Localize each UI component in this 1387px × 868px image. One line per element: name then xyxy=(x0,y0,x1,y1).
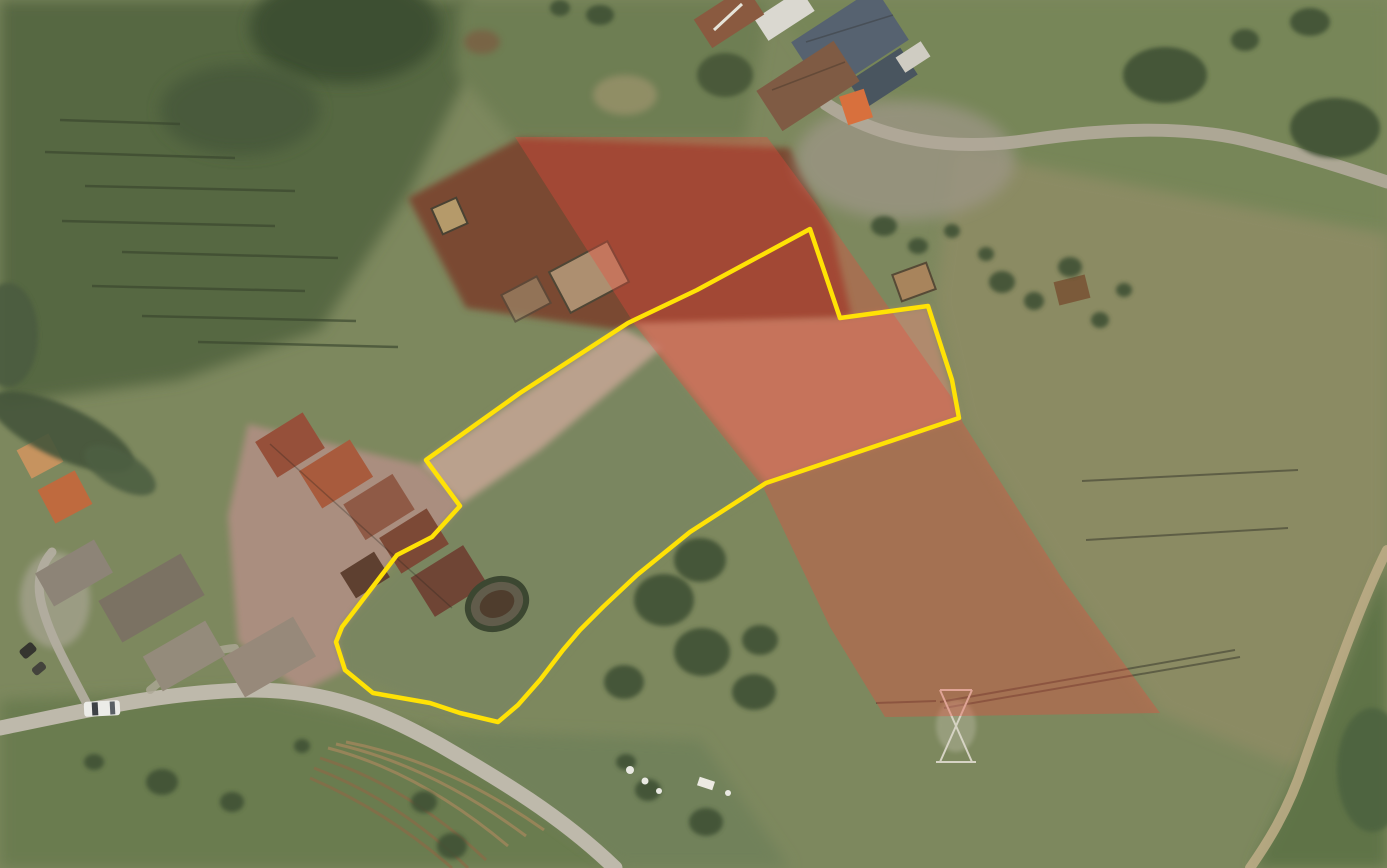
tree-canopy xyxy=(220,792,244,812)
white-car-on-road-window xyxy=(92,702,99,715)
tree-canopy xyxy=(978,247,994,261)
tree-canopy xyxy=(742,625,778,655)
tree-canopy xyxy=(697,53,753,97)
tree-canopy xyxy=(437,833,467,859)
tree-canopy xyxy=(989,271,1015,293)
aerial-map-view xyxy=(0,0,1387,868)
tree-canopy xyxy=(1116,283,1132,297)
tree-canopy xyxy=(1290,8,1330,36)
tree-canopy xyxy=(1123,47,1207,103)
tree-canopy xyxy=(146,769,178,795)
tree-canopy xyxy=(871,216,897,236)
tree-canopy xyxy=(944,224,960,238)
gravel-yard-top xyxy=(795,100,1015,220)
tree-canopy xyxy=(294,739,310,753)
brown-spot xyxy=(464,30,500,54)
forest-dense-clump-2 xyxy=(160,65,320,155)
tree-canopy xyxy=(1024,292,1044,310)
tree-canopy xyxy=(634,574,694,626)
tree-canopy xyxy=(732,674,776,710)
white-rock xyxy=(642,778,649,785)
tree-canopy xyxy=(550,0,570,16)
tree-canopy xyxy=(604,665,644,699)
tree-canopy xyxy=(586,5,614,25)
bare-spot xyxy=(593,75,657,115)
white-rock xyxy=(656,788,662,794)
tree-canopy xyxy=(1058,257,1082,277)
tree-canopy xyxy=(84,754,104,770)
tree-canopy xyxy=(689,808,723,836)
white-rock xyxy=(626,766,634,774)
tree-canopy xyxy=(1231,29,1259,51)
tree-canopy xyxy=(908,238,928,254)
satellite-canvas[interactable] xyxy=(0,0,1387,868)
white-rock xyxy=(725,790,731,796)
tree-canopy xyxy=(411,791,437,813)
tree-canopy xyxy=(674,628,730,676)
tree-canopy xyxy=(674,538,726,582)
tree-canopy xyxy=(1290,98,1380,158)
white-car-on-road-window xyxy=(110,701,116,714)
tree-canopy xyxy=(1091,312,1109,328)
